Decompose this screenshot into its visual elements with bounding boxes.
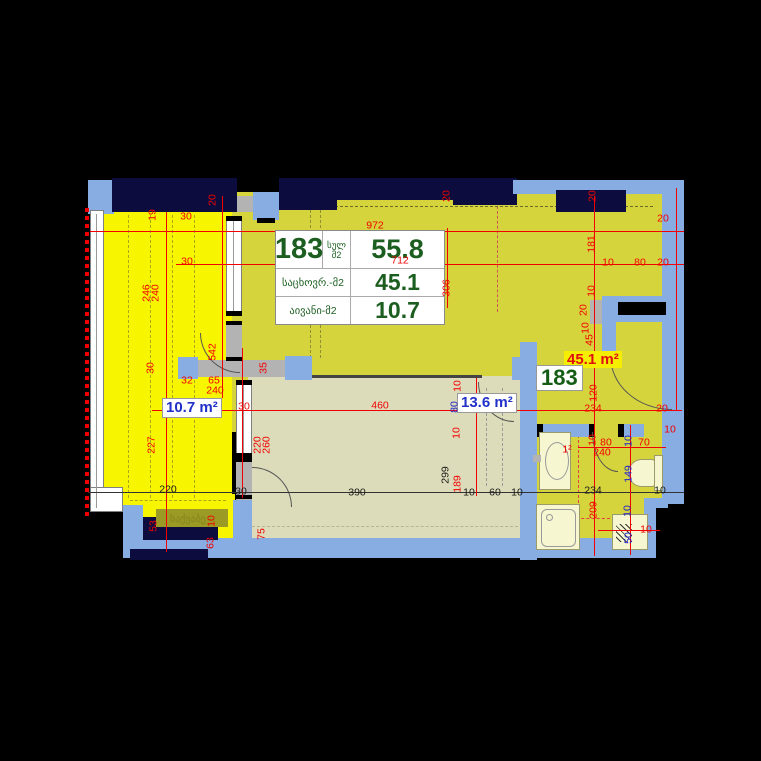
dimension-label: 240 (151, 284, 162, 302)
dimension-label: 299 (441, 466, 452, 484)
dim-line (166, 212, 167, 552)
dim-line (222, 196, 223, 398)
dimension-label: 181 (587, 235, 598, 253)
dimension-label: 53 (149, 520, 160, 532)
dimension-label: 10 (623, 505, 634, 517)
window-frame-mark (226, 216, 242, 221)
dimension-label: 20 (579, 304, 590, 316)
balcony-area-row-value: 10.7 (351, 297, 444, 324)
balcony-dash-line (130, 500, 226, 501)
dimension-label: 30 (180, 212, 192, 223)
dimension-label: 20 (657, 258, 669, 269)
dimension-label: 10 (207, 515, 218, 527)
balcony-glazing-left (90, 210, 104, 512)
dim-line (676, 188, 677, 410)
wall-boiler-partition (233, 500, 252, 558)
dimension-label: 10 (640, 525, 652, 536)
dimension-label: 972 (366, 221, 384, 232)
dimension-label: 10 (587, 285, 598, 297)
dimension-label: 19 (148, 209, 159, 221)
dimension-label: 50 (624, 532, 635, 544)
wall-top-exterior-right (453, 178, 517, 205)
insulation-hatch (85, 204, 89, 516)
dimension-label: 240 (593, 448, 611, 459)
dimension-label: 306 (442, 279, 453, 297)
dimension-label: 10 (511, 488, 523, 499)
dimension-label: 209 (589, 501, 600, 519)
living-area-row-value: 45.1 (351, 269, 444, 296)
dim-line (242, 348, 243, 498)
dimension-label: 45 (585, 334, 596, 346)
door-hinge-mark (236, 458, 252, 462)
dimension-label: 10 (581, 322, 592, 334)
wall-right-exterior (662, 188, 684, 504)
living-area-row-label: საცხოვრ.-მ2 (276, 269, 351, 296)
dimension-label: 220 (159, 485, 177, 496)
balcony-glazing-corner (90, 487, 123, 512)
dimension-label: 390 (348, 488, 366, 499)
wall-plaster-patch (237, 196, 253, 212)
wall-partition-line (312, 375, 482, 378)
entry-door-leaf (618, 302, 666, 315)
dimension-label: 260 (262, 436, 273, 454)
window-sill-mark (257, 218, 275, 223)
wall-bottom-band (218, 538, 656, 558)
dimension-label: 10 (463, 488, 475, 499)
living-dashdot-line (497, 206, 498, 312)
balcony-dash-line (172, 215, 173, 498)
dimension-label: 10 (452, 427, 463, 439)
window-glass-line (243, 384, 244, 454)
unit-number-badge: 183 (536, 365, 583, 391)
dimension-label: 75 (257, 528, 268, 540)
wall-corner-top-left (88, 180, 114, 214)
dimension-label: 70 (638, 438, 650, 449)
window-frame-mark (236, 380, 252, 385)
dimension-label: 32 (181, 376, 193, 387)
dimension-label: 30 (181, 257, 193, 268)
dimension-label: 10 (624, 435, 635, 447)
dimension-label: 20 (208, 194, 219, 206)
wall-window-column (253, 192, 279, 220)
dimension-label: 227 (147, 436, 158, 454)
dim-line (152, 410, 682, 411)
dimension-label: 80 (634, 258, 646, 269)
bedroom-area-label: 13.6 m² (457, 393, 517, 413)
dimension-label: 10 (453, 380, 464, 392)
dimension-label: 60 (489, 488, 501, 499)
total-unit-text: მ2 (332, 250, 342, 260)
dimension-label: 234 (584, 486, 602, 497)
exterior-notch (656, 508, 686, 560)
boiler-room-name: საქვაბე (170, 514, 206, 525)
dimension-label: 10 (664, 425, 676, 436)
dimension-label: 20 (657, 214, 669, 225)
dimension-label: 542 (208, 343, 219, 361)
dimension-label: 120 (589, 384, 600, 402)
window-frame-mark (226, 311, 242, 316)
balcony-dash-line (128, 215, 129, 498)
dimension-label: 20 (656, 404, 668, 415)
window-glass-line (233, 220, 234, 312)
dimension-label: 10 (588, 434, 599, 446)
dimension-label: 10 (602, 258, 614, 269)
total-label-text: სულ (327, 240, 346, 250)
shower-drain (546, 514, 553, 521)
dimension-label: 149 (624, 465, 635, 483)
dimension-label: 63 (206, 537, 217, 549)
dimension-label: 189 (453, 475, 464, 493)
window-glass-line (96, 214, 97, 508)
dimension-label: 20 (588, 190, 599, 202)
wall-top-exterior-mid2 (279, 196, 337, 210)
dimension-label: 80 (450, 401, 461, 413)
wall-bottom-navy-left2 (130, 549, 208, 560)
bedroom-dash-line (252, 526, 518, 527)
dimension-label: 30 (235, 487, 247, 498)
dim-line (578, 447, 666, 448)
dimension-label: 240 (206, 386, 224, 397)
floor-plan-canvas: 9727122010802030303265240304602342080240… (0, 0, 761, 761)
dimension-label: 460 (371, 401, 389, 412)
dimension-label: 20 (442, 190, 453, 202)
wall-corner-bottom-left (123, 505, 143, 543)
dimension-label: 712 (391, 256, 409, 267)
unit-number: 183 (276, 231, 323, 268)
sink-tap (533, 455, 541, 462)
dimension-label: 30 (146, 362, 157, 374)
balcony-dash-line (150, 215, 151, 498)
balcony-area-row-label: აივანი-მ2 (276, 297, 351, 324)
window-bedroom-balcony (236, 380, 252, 458)
dimension-label: 1² (562, 445, 571, 456)
door-hinge-mark (226, 321, 242, 325)
dimension-label: 30 (238, 402, 250, 413)
wall-corridor-bathroom (520, 342, 537, 560)
balcony-area-label: 10.7 m² (162, 398, 222, 418)
wall-block-b (285, 356, 312, 380)
unit-info-table: 183 სულ მ2 55.8 საცხოვრ.-მ2 45.1 აივანი-… (275, 230, 445, 325)
dimension-label: 234 (584, 404, 602, 415)
dimension-label: 35 (259, 362, 270, 374)
dimension-label: 10 (654, 486, 666, 497)
total-label: სულ მ2 (323, 231, 351, 268)
